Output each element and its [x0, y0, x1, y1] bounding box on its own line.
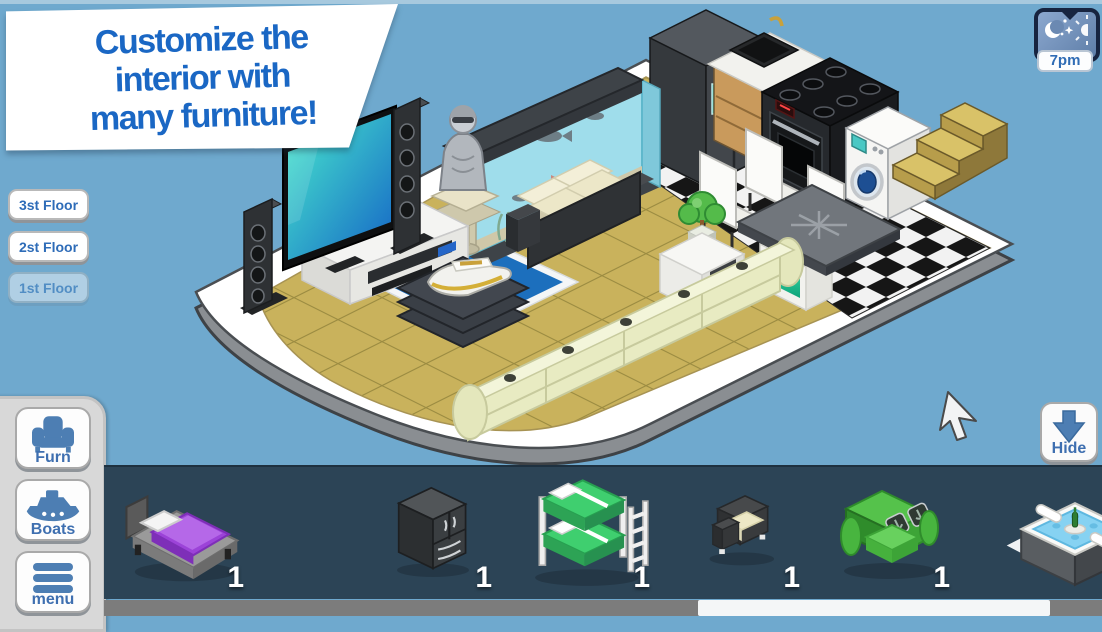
game-stage: Customize the interior with many furnitu…	[0, 0, 1102, 620]
time-notch	[1061, 11, 1079, 20]
floor-button-2[interactable]: 2st Floor	[8, 231, 89, 262]
inventory-bar: 1 1	[104, 465, 1102, 599]
floor-button-1[interactable]: 1st Floor	[8, 272, 89, 303]
armchair-item-icon	[689, 475, 794, 583]
hide-panel-button[interactable]: Hide	[1040, 402, 1098, 462]
item-count: 1	[783, 561, 800, 595]
left-dock-panel: Furn Boats	[0, 396, 106, 632]
inventory-item-bunk-bed[interactable]: 1	[516, 469, 666, 595]
item-count: 1	[633, 561, 650, 595]
inventory-scrollbar-thumb[interactable]	[698, 600, 1050, 616]
furniture-tab-button[interactable]: Furn	[15, 407, 91, 469]
boats-tab-button[interactable]: Boats	[15, 479, 91, 541]
item-count: 1	[475, 561, 492, 595]
hot-tub-icon	[999, 469, 1102, 589]
tutorial-banner: Customize the interior with many furnitu…	[6, 4, 398, 152]
inventory-scrollbar-track[interactable]	[104, 600, 1102, 616]
menu-label: menu	[17, 591, 89, 609]
furn-label: Furn	[17, 449, 89, 467]
banner-text: Customize the interior with many furnitu…	[20, 16, 384, 140]
inventory-item-armchair[interactable]: 1	[666, 469, 816, 595]
item-count: 1	[933, 561, 950, 595]
time-of-day-button[interactable]: 7pm	[1034, 8, 1098, 74]
inventory-item-wardrobe[interactable]: 1	[358, 469, 508, 595]
inventory-item-green-sofa[interactable]: 1	[816, 469, 966, 595]
inventory-item-bed[interactable]: 1	[110, 469, 260, 595]
item-count: 1	[227, 561, 244, 595]
mouse-cursor	[940, 392, 976, 440]
banner-shape: Customize the interior with many furnitu…	[6, 4, 398, 152]
boats-label: Boats	[17, 521, 89, 539]
floor-button-3[interactable]: 3st Floor	[8, 189, 89, 220]
inventory-item-hot-tub[interactable]: 1	[1000, 469, 1102, 595]
menu-button[interactable]: menu	[15, 551, 91, 613]
time-label: 7pm	[1037, 50, 1093, 72]
